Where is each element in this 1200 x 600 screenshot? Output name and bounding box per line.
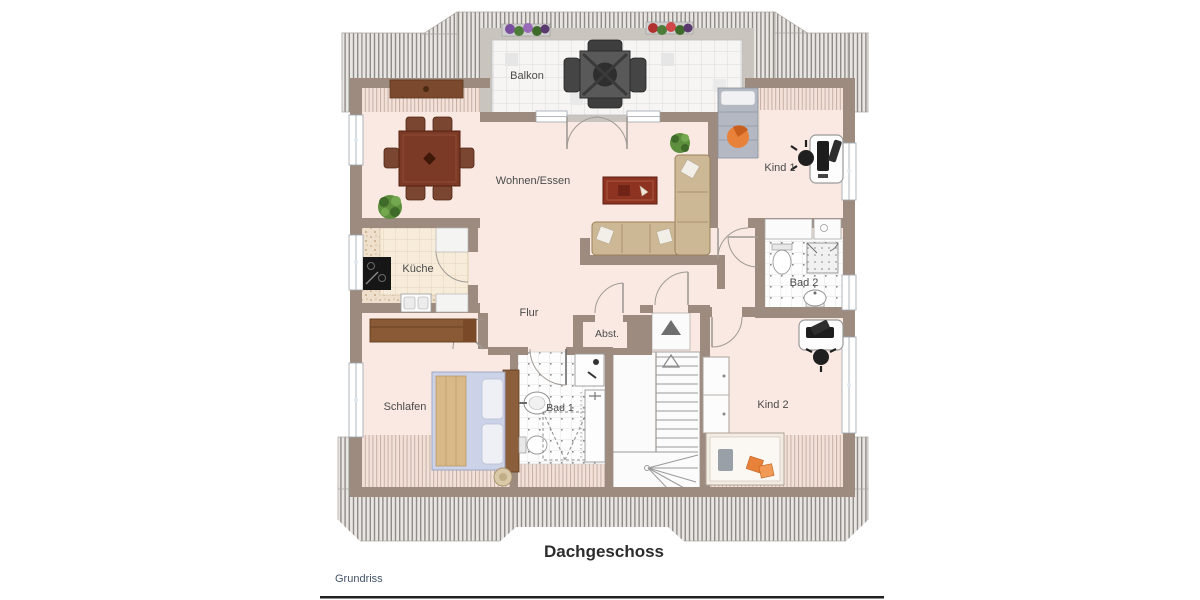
flower-box-left (502, 23, 550, 36)
bed-schlafen (432, 370, 519, 472)
toilet-bad2 (772, 244, 792, 274)
window-kueche-left (349, 235, 363, 290)
window-kind2-right (842, 337, 856, 433)
shower-bad2 (807, 243, 838, 273)
window-schlafen-left (349, 363, 363, 437)
room-label-kind2: Kind 2 (757, 399, 788, 411)
plan-title: Dachgeschoss (544, 542, 664, 561)
window-bad2-right (842, 275, 856, 310)
room-label-flur: Flur (520, 307, 539, 319)
sideboard-schlafen (370, 319, 476, 342)
plan-caption: Grundriss (335, 573, 383, 585)
plant-left (378, 195, 402, 219)
room-label-schlafen: Schlafen (384, 401, 427, 413)
room-label-balkon: Balkon (510, 70, 544, 82)
floorplan-drawing: Balkon Wohnen/Essen Kind 1 Küche Bad 2 F… (0, 0, 1200, 600)
room-label-kueche: Küche (402, 263, 433, 275)
room-label-bad2: Bad 2 (790, 277, 819, 289)
flower-box-right (646, 22, 693, 35)
window-balkon-right (627, 111, 660, 122)
window-wohnen-left (349, 115, 363, 165)
plant-right (670, 133, 690, 153)
floorplan-page: Balkon Wohnen/Essen Kind 1 Küche Bad 2 F… (0, 0, 1200, 600)
bathtub-bad1 (581, 390, 605, 462)
wardrobe-kind2 (703, 357, 729, 433)
window-balkon-left (536, 111, 567, 122)
footer-rule (320, 596, 884, 599)
nightstand (494, 468, 512, 486)
room-label-wohnen: Wohnen/Essen (496, 175, 570, 187)
washer-bad1 (575, 354, 604, 386)
sink-bad2 (804, 290, 826, 307)
room-label-bad1: Bad 1 (546, 402, 574, 414)
room-label-kind1: Kind 1 (764, 162, 795, 174)
room-label-abst: Abst. (595, 328, 619, 340)
rug (603, 177, 657, 204)
bed-kind2 (706, 433, 784, 485)
window-kind1-right (842, 143, 856, 200)
